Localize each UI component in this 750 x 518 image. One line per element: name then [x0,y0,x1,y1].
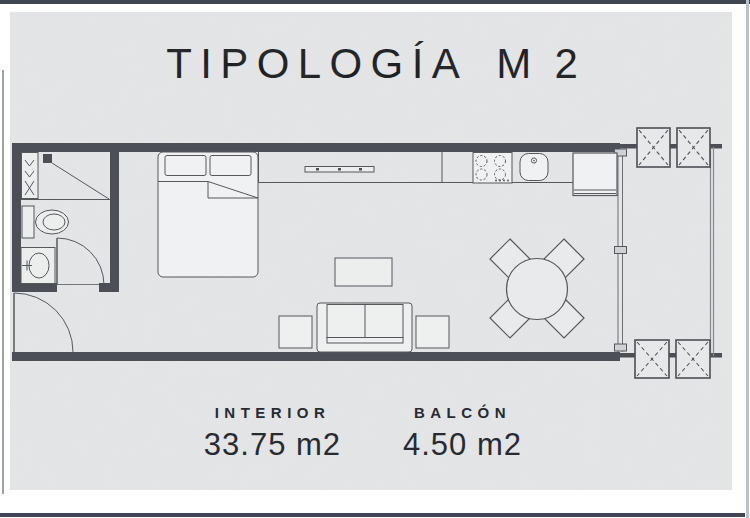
wall-bathroom-bottom-right [99,283,119,292]
balcony-label: BALCÓN [385,404,540,421]
ac-unit [677,128,710,167]
counter-shelf [305,167,374,173]
shower-head-icon [43,154,52,163]
frame-top-border [0,0,750,4]
floor-plan [0,0,750,518]
frame-right-border [746,0,749,518]
balcony-value: 4.50 m2 [385,427,540,463]
double-bed [158,152,258,277]
wall-top [12,143,620,152]
frame-bottom-border [0,513,745,517]
wall-left [12,143,21,292]
stove [473,153,512,184]
side-table-right [416,316,449,348]
wall-bathroom-right [110,152,119,291]
ac-unit [676,340,710,378]
kitchen-sink [520,154,548,181]
balcony-area: BALCÓN 4.50 m2 [385,404,540,463]
refrigerator [573,153,617,196]
interior-area: INTERIOR 33.75 m2 [175,404,370,463]
ac-unit [637,128,670,167]
interior-label: INTERIOR [175,404,370,421]
interior-value: 33.75 m2 [175,427,370,463]
sofa [317,303,412,352]
dining-table [507,259,568,320]
ac-unit [635,340,669,378]
coffee-table [335,258,392,286]
sink-vanity [21,248,55,284]
wall-bottom [12,352,620,361]
wall-bathroom-bottom-left [12,283,57,292]
wardrobe [22,153,39,199]
side-table-left [279,316,312,348]
frame-left-border [2,70,4,494]
floorplan-sheet: TIPOLOGÍA M 2 [0,0,750,518]
